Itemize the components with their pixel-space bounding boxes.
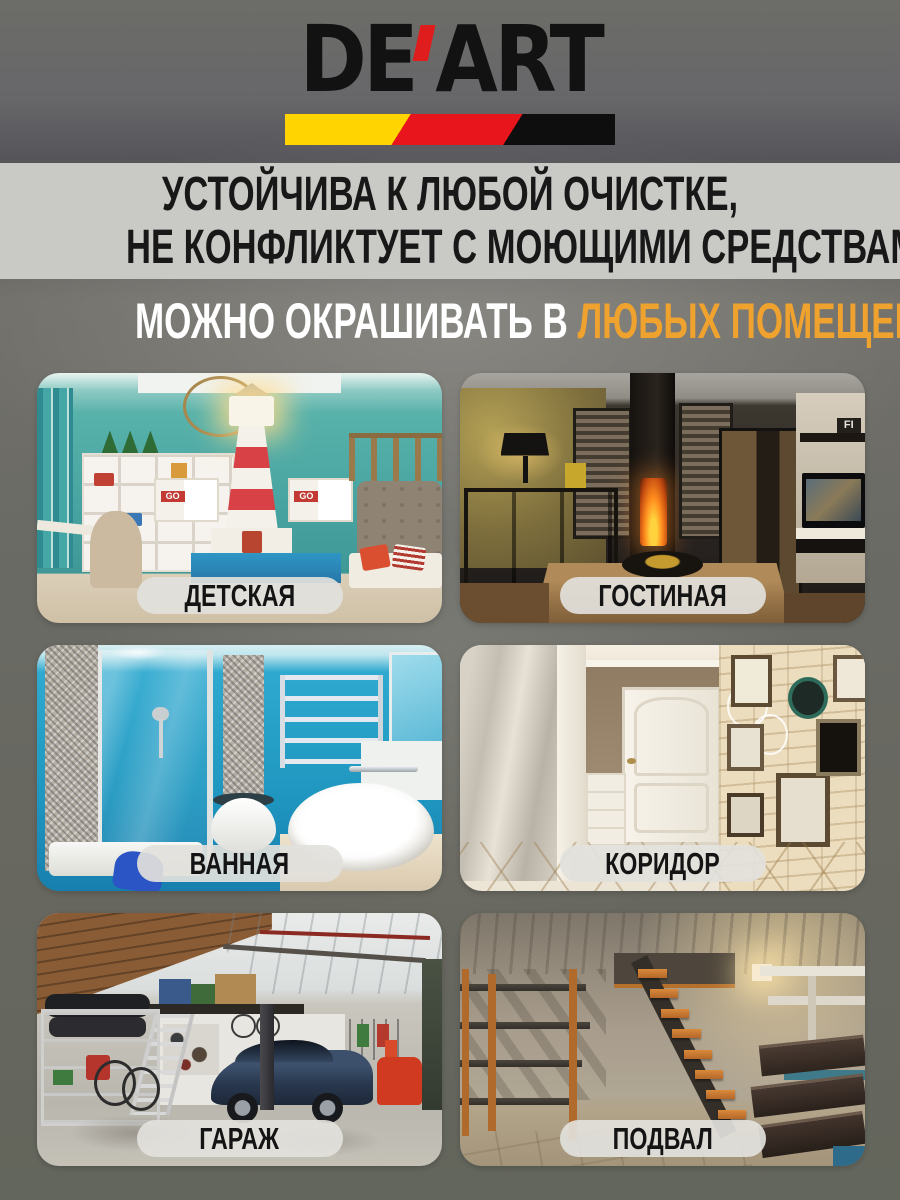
picture-frame: [816, 719, 860, 776]
mini-tree: [142, 431, 158, 454]
go-tag: GO: [161, 491, 185, 502]
subheadline-highlight: ЛЮБЫХ ПОМЕЩЕНИЯХ: [578, 293, 900, 349]
lamp-stem: [523, 456, 528, 484]
picture-frame: [833, 655, 865, 702]
car-wheel: [227, 1093, 257, 1123]
mirror: [389, 652, 442, 747]
door-panel: [634, 783, 709, 833]
room-card-living: FI ГОСТИНАЯ: [460, 373, 865, 623]
shaggy-rug: [784, 593, 865, 623]
red-pillow: [359, 543, 391, 570]
mosaic-strip: [223, 655, 264, 803]
room-label: КОРИДОР: [605, 845, 720, 882]
shower-glass: [98, 650, 213, 866]
lighthouse-lantern: [229, 396, 274, 426]
room-label: ГОСТИНАЯ: [598, 577, 726, 614]
hanging-bike: [231, 1014, 255, 1038]
door-panel: [634, 697, 709, 777]
picture-frame: [727, 793, 763, 838]
tv-stand: [796, 528, 865, 553]
headline-line-2: НЕ КОНФЛИКТУЕТ С МОЮЩИМИ СРЕДСТВАМИ: [126, 221, 774, 274]
stair-tread: [706, 1090, 734, 1099]
decor-bowl: [622, 551, 703, 579]
white-shelf: [768, 996, 865, 1005]
fireplace-column: [630, 373, 675, 578]
room-label-pill: ГАРАЖ: [137, 1120, 343, 1157]
window-curtains: [37, 388, 73, 568]
picture-frame: [776, 773, 831, 847]
table-lamp: [501, 433, 550, 456]
storage-drawer: [750, 1073, 865, 1117]
mezzanine-loft: [150, 1004, 304, 1014]
fireplace-fire: [640, 478, 666, 546]
headline-line-1: УСТОЙЧИВА К ЛЮБОЙ ОЧИСТКЕ,: [126, 168, 774, 221]
picture-frame: [727, 724, 763, 771]
striped-pillow: [392, 543, 427, 570]
room-label-pill: ВАННАЯ: [137, 845, 343, 882]
lift-post: [260, 1004, 274, 1110]
stair-tread: [684, 1050, 712, 1059]
yellow-vase: [565, 463, 585, 488]
storage-boxes: [159, 979, 191, 1007]
car-wheel: [312, 1093, 342, 1123]
shaggy-rug: [460, 583, 549, 623]
stair-tread: [718, 1110, 746, 1119]
tv-picture: [806, 479, 861, 520]
orange-shelf-post: [488, 974, 495, 1131]
room-label: ВАННАЯ: [190, 845, 290, 882]
shelf-letters: FI: [837, 418, 861, 433]
subheadline-normal: МОЖНО ОКРАШИВАТЬ В: [135, 293, 578, 349]
mosaic-column: [45, 645, 98, 871]
room-card-bath: ВАННАЯ: [37, 645, 442, 891]
white-shelf: [760, 966, 865, 976]
hall-vanity: [586, 773, 626, 846]
room-label: ГАРАЖ: [200, 1120, 280, 1157]
logo-prefix: DE: [299, 6, 414, 113]
room-label-pill: КОРИДОР: [560, 845, 766, 882]
wall-shelf: [800, 433, 865, 442]
room-card-cellar: ПОДВАЛ: [460, 913, 865, 1166]
room-label: ПОДВАЛ: [612, 1120, 712, 1157]
stair-tread: [672, 1029, 700, 1038]
orange-shelf-post: [462, 969, 469, 1136]
green-tool-item: [53, 1070, 73, 1085]
logo-suffix: ART: [435, 6, 601, 113]
stair-tread: [661, 1009, 689, 1018]
mini-tree: [102, 431, 118, 454]
drawer-teal-liner: [833, 1146, 865, 1166]
stair-tread: [638, 969, 666, 978]
room-grid: GO GO ДЕТСКАЯ: [37, 373, 865, 1166]
stair-tread: [695, 1070, 723, 1079]
lighthouse-tower: [225, 426, 278, 531]
room-label-pill: ПОДВАЛ: [560, 1120, 766, 1157]
room-card-garage: ГАРАЖ: [37, 913, 442, 1166]
lighthouse-door: [242, 531, 262, 554]
toilet-bowl: [211, 798, 276, 852]
room-label-pill: ГОСТИНАЯ: [560, 577, 766, 614]
door-handle: [627, 758, 636, 763]
subheadline: МОЖНО ОКРАШИВАТЬ В ЛЮБЫХ ПОМЕЩЕНИЯХ: [135, 293, 765, 349]
shelf-board: [460, 1060, 582, 1068]
shelf-board: [460, 1098, 573, 1106]
garage-opening: [422, 959, 442, 1111]
logo-wordmark: DEART: [299, 14, 601, 106]
shower-hose: [159, 719, 164, 758]
room-card-hall: КОРИДОР: [460, 645, 865, 891]
room-card-kids: GO GO ДЕТСКАЯ: [37, 373, 442, 623]
armchair: [90, 511, 143, 589]
shelf-clutter: [49, 1017, 146, 1037]
green-tool: [357, 1024, 369, 1047]
room-label: ДЕТСКАЯ: [184, 577, 295, 614]
headline-band: УСТОЙЧИВА К ЛЮБОЙ ОЧИСТКЕ, НЕ КОНФЛИКТУЕ…: [0, 163, 900, 279]
logo-flag-stripe: [285, 114, 615, 145]
mini-tree: [122, 431, 138, 454]
snowblower: [377, 1057, 422, 1105]
wall-faucet: [349, 766, 418, 772]
stair-tread: [650, 989, 678, 998]
shelf-board: [460, 984, 586, 992]
go-tag: GO: [294, 491, 318, 502]
orange-shelf-post: [569, 969, 576, 1141]
stair-opening: [614, 953, 736, 987]
toy-red: [94, 473, 114, 486]
picture-frame: [731, 655, 771, 707]
brand-logo: DEART: [0, 0, 900, 145]
bunk-bed-rail: [349, 433, 442, 481]
promo-page: DEART УСТОЙЧИВА К ЛЮБОЙ ОЧИСТКЕ, НЕ КОНФ…: [0, 0, 900, 1200]
storage-boxes: [215, 974, 256, 1007]
logo-apostrophe-mark: [412, 25, 435, 61]
room-label-pill: ДЕТСКАЯ: [137, 577, 343, 614]
